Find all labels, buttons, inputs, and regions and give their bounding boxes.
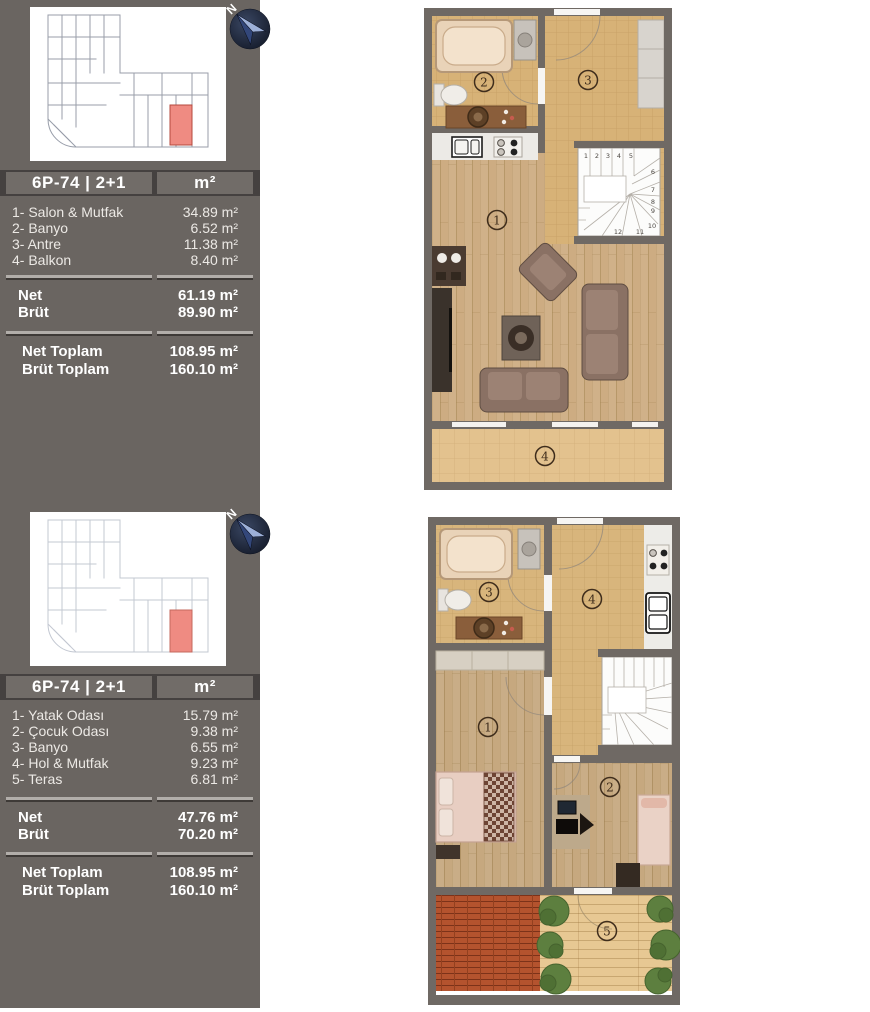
site-plan-thumbnail-lower bbox=[30, 512, 226, 666]
room-row: 2- Çocuk Odası 9.38 m² bbox=[0, 723, 260, 739]
area-unit-label: m² bbox=[157, 172, 253, 194]
net-value: 47.76 m² bbox=[178, 809, 238, 826]
room-area: 6.81 m² bbox=[191, 771, 238, 787]
room-area: 9.38 m² bbox=[191, 723, 238, 739]
room-row: 5- Teras 6.81 m² bbox=[0, 771, 260, 787]
kitchen-sink bbox=[452, 137, 482, 157]
room-label: 5- Teras bbox=[12, 771, 62, 787]
floorplan-upper: 1 2 3 4 5 6 7 8 9 10 11 12 bbox=[424, 8, 672, 495]
brut-total-row: Brüt Toplam 160.10 m² bbox=[0, 361, 260, 379]
room-area: 6.52 m² bbox=[191, 220, 238, 236]
totals-upper: Net Toplam 108.95 m² Brüt Toplam 160.10 … bbox=[0, 343, 260, 379]
svg-text:2: 2 bbox=[606, 781, 614, 795]
wardrobe bbox=[638, 20, 664, 108]
stair-step-number: 11 bbox=[636, 228, 644, 236]
single-bed bbox=[638, 795, 670, 865]
room-label: 1- Salon & Mutfak bbox=[12, 204, 123, 220]
room-area: 8.40 m² bbox=[191, 252, 238, 268]
dining-table bbox=[432, 246, 466, 286]
room-row: 4- Balkon 8.40 m² bbox=[0, 252, 260, 268]
stove bbox=[494, 137, 522, 157]
stair-step-number: 6 bbox=[651, 168, 655, 176]
room-label: 1- Yatak Odası bbox=[12, 707, 104, 723]
room-label: 2- Çocuk Odası bbox=[12, 723, 109, 739]
room-row: 3- Antre 11.38 m² bbox=[0, 236, 260, 252]
svg-text:3: 3 bbox=[485, 586, 493, 600]
stair-step-number: 3 bbox=[606, 152, 610, 160]
svg-text:4: 4 bbox=[541, 450, 549, 464]
bathtub bbox=[440, 529, 512, 579]
net-row: Net 61.19 m² bbox=[0, 287, 260, 304]
desk-nook bbox=[552, 795, 594, 849]
bathroom-vanity bbox=[446, 106, 526, 128]
floorplan-upper-svg: 1 2 3 4 5 6 7 8 9 10 11 12 bbox=[424, 8, 672, 490]
room-area: 9.23 m² bbox=[191, 755, 238, 771]
room-label: 3- Banyo bbox=[12, 739, 68, 755]
room-row: 2- Banyo 6.52 m² bbox=[0, 220, 260, 236]
staircase bbox=[602, 657, 672, 745]
net-total-value: 108.95 m² bbox=[170, 864, 238, 882]
toilet bbox=[434, 84, 467, 106]
brut-total-row: Brüt Toplam 160.10 m² bbox=[0, 882, 260, 900]
room-area: 6.55 m² bbox=[191, 739, 238, 755]
stair-step-number: 1 bbox=[584, 152, 588, 160]
brut-row: Brüt 70.20 m² bbox=[0, 826, 260, 843]
floorplan-lower-svg: 1 2 3 4 5 bbox=[428, 517, 680, 1005]
brut-total-value: 160.10 m² bbox=[170, 361, 238, 379]
room-label: 2- Banyo bbox=[12, 220, 68, 236]
stair-step-number: 8 bbox=[651, 198, 655, 206]
net-total-label: Net Toplam bbox=[22, 343, 103, 361]
kitchen-sink bbox=[646, 593, 670, 633]
room-label: 4- Balkon bbox=[12, 252, 71, 268]
highlighted-unit bbox=[170, 610, 192, 652]
floorplan-sheet: 6P-74 | 2+1 m² 1- Salon & Mutfak 34.89 m… bbox=[0, 0, 870, 1012]
room-row: 1- Yatak Odası 15.79 m² bbox=[0, 707, 260, 723]
unit-code: 6P-74 | 2+1 bbox=[6, 172, 152, 194]
room-area: 34.89 m² bbox=[183, 204, 238, 220]
washing-machine bbox=[514, 20, 536, 60]
floorplan-lower: 1 2 3 4 5 bbox=[428, 517, 680, 1010]
washing-machine bbox=[518, 529, 540, 569]
svg-text:2: 2 bbox=[480, 76, 488, 90]
unit-header-upper: 6P-74 | 2+1 m² bbox=[0, 170, 260, 196]
unit-header-lower: 6P-74 | 2+1 m² bbox=[0, 674, 260, 700]
bathtub bbox=[436, 20, 512, 72]
room-area: 11.38 m² bbox=[184, 236, 238, 252]
svg-text:1: 1 bbox=[484, 721, 492, 735]
bathroom-vanity bbox=[456, 617, 522, 639]
net-value: 61.19 m² bbox=[178, 287, 238, 304]
brut-value: 89.90 m² bbox=[178, 304, 238, 321]
brut-row: Brüt 89.90 m² bbox=[0, 304, 260, 321]
brut-total-label: Brüt Toplam bbox=[22, 361, 109, 379]
svg-text:4: 4 bbox=[588, 593, 596, 607]
net-total-row: Net Toplam 108.95 m² bbox=[0, 343, 260, 361]
stair-step-number: 9 bbox=[651, 207, 655, 215]
divider bbox=[0, 331, 260, 337]
brut-total-label: Brüt Toplam bbox=[22, 882, 109, 900]
stair-step-number: 5 bbox=[629, 152, 633, 160]
divider bbox=[0, 852, 260, 858]
brut-total-value: 160.10 m² bbox=[170, 882, 238, 900]
site-plan-thumbnail-upper bbox=[30, 7, 226, 161]
brut-label: Brüt bbox=[18, 826, 49, 843]
stair-step-number: 12 bbox=[614, 228, 622, 236]
divider bbox=[0, 797, 260, 803]
site-plan-upper-svg bbox=[30, 7, 226, 161]
wardrobe bbox=[436, 651, 544, 670]
room-row: 4- Hol & Mutfak 9.23 m² bbox=[0, 755, 260, 771]
bedroom-bench bbox=[436, 845, 460, 859]
stove bbox=[647, 545, 669, 575]
stair-step-number: 2 bbox=[595, 152, 599, 160]
stair-step-number: 7 bbox=[651, 186, 655, 194]
compass-icon: N bbox=[224, 506, 272, 556]
site-plan-lower-svg bbox=[30, 512, 226, 666]
net-brut-lower: Net 47.76 m² Brüt 70.20 m² bbox=[0, 809, 260, 843]
nightstand bbox=[616, 863, 640, 887]
stair-step-number: 4 bbox=[617, 152, 621, 160]
net-label: Net bbox=[18, 287, 42, 304]
svg-text:3: 3 bbox=[584, 74, 592, 88]
loveseat bbox=[480, 368, 568, 412]
totals-lower: Net Toplam 108.95 m² Brüt Toplam 160.10 … bbox=[0, 864, 260, 900]
compass-icon: N bbox=[224, 1, 272, 51]
room-row: 1- Salon & Mutfak 34.89 m² bbox=[0, 204, 260, 220]
toilet bbox=[438, 589, 471, 611]
coffee-table bbox=[502, 316, 540, 360]
net-total-label: Net Toplam bbox=[22, 864, 103, 882]
room-row: 3- Banyo 6.55 m² bbox=[0, 739, 260, 755]
highlighted-unit bbox=[170, 105, 192, 145]
brut-label: Brüt bbox=[18, 304, 49, 321]
room-area: 15.79 m² bbox=[183, 707, 238, 723]
net-total-row: Net Toplam 108.95 m² bbox=[0, 864, 260, 882]
net-brut-upper: Net 61.19 m² Brüt 89.90 m² bbox=[0, 287, 260, 321]
net-label: Net bbox=[18, 809, 42, 826]
tv-unit bbox=[432, 288, 452, 392]
divider bbox=[0, 275, 260, 281]
room-list-upper: 1- Salon & Mutfak 34.89 m² 2- Banyo 6.52… bbox=[0, 204, 260, 268]
staircase: 1 2 3 4 5 6 7 8 9 10 11 12 bbox=[578, 148, 660, 236]
room-list-lower: 1- Yatak Odası 15.79 m² 2- Çocuk Odası 9… bbox=[0, 707, 260, 787]
terrace-roof-tiles bbox=[436, 895, 540, 991]
svg-text:1: 1 bbox=[493, 214, 501, 228]
area-unit-label: m² bbox=[157, 676, 253, 698]
stair-step-number: 10 bbox=[648, 222, 656, 230]
sofa bbox=[582, 284, 628, 380]
net-total-value: 108.95 m² bbox=[170, 343, 238, 361]
unit-code: 6P-74 | 2+1 bbox=[6, 676, 152, 698]
brut-value: 70.20 m² bbox=[178, 826, 238, 843]
net-row: Net 47.76 m² bbox=[0, 809, 260, 826]
room-label: 3- Antre bbox=[12, 236, 61, 252]
info-sidebar: 6P-74 | 2+1 m² 1- Salon & Mutfak 34.89 m… bbox=[0, 0, 260, 1008]
room-label: 4- Hol & Mutfak bbox=[12, 755, 108, 771]
svg-text:5: 5 bbox=[603, 925, 611, 939]
